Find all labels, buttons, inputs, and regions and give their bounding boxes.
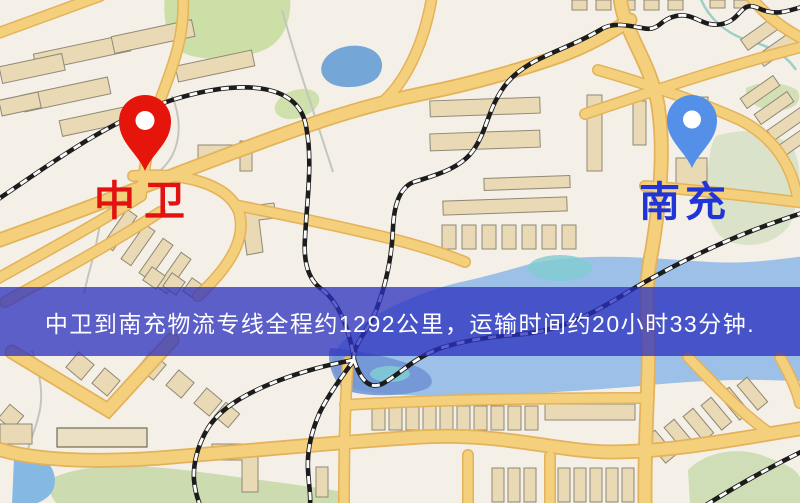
- destination-city-label: 南充: [639, 182, 731, 223]
- origin-city-label: 中卫: [94, 181, 194, 222]
- route-info-banner: 中卫到南充物流专线全程约1292公里，运输时间约20小时33分钟.: [0, 287, 800, 356]
- map-image: [0, 0, 800, 503]
- map-canvas: [0, 0, 800, 503]
- route-info-text: 中卫到南充物流专线全程约1292公里，运输时间约20小时33分钟.: [45, 305, 755, 339]
